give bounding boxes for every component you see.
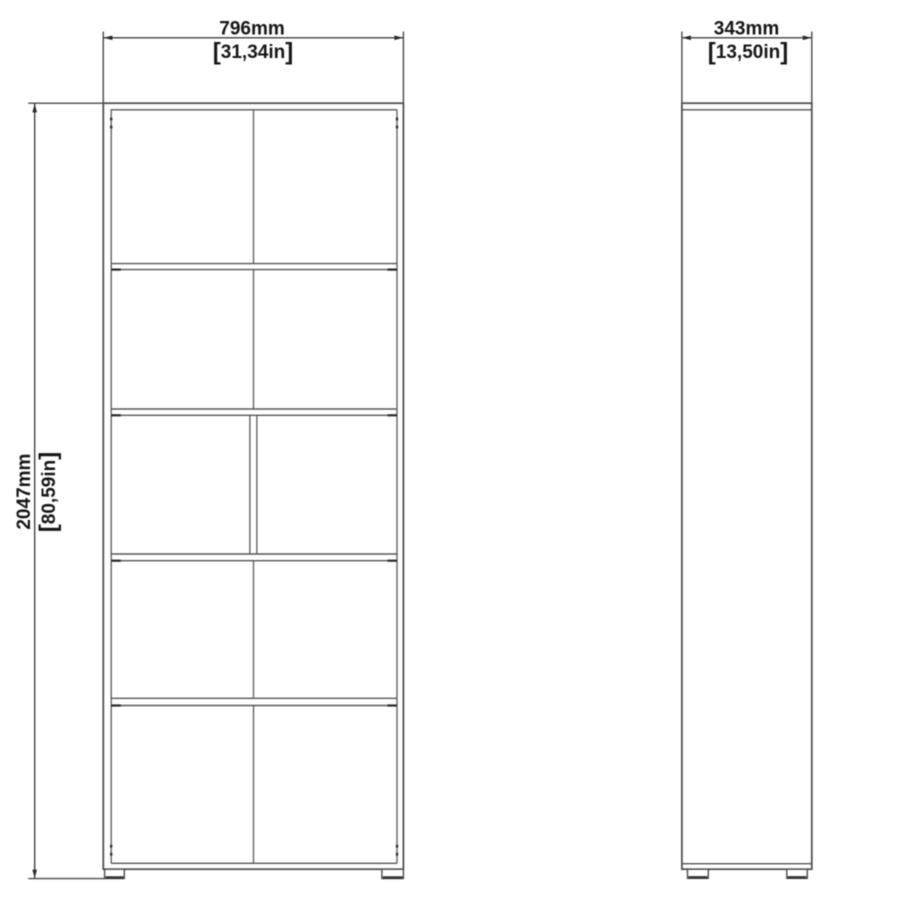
svg-text:[13,50in]: [13,50in] xyxy=(708,38,788,65)
svg-text:[31,34in]: [31,34in] xyxy=(213,38,293,65)
svg-text:[80,59in]: [80,59in] xyxy=(35,452,62,532)
svg-text:343mm: 343mm xyxy=(714,18,780,39)
svg-text:2047mm: 2047mm xyxy=(14,454,35,530)
svg-text:796mm: 796mm xyxy=(219,18,285,39)
